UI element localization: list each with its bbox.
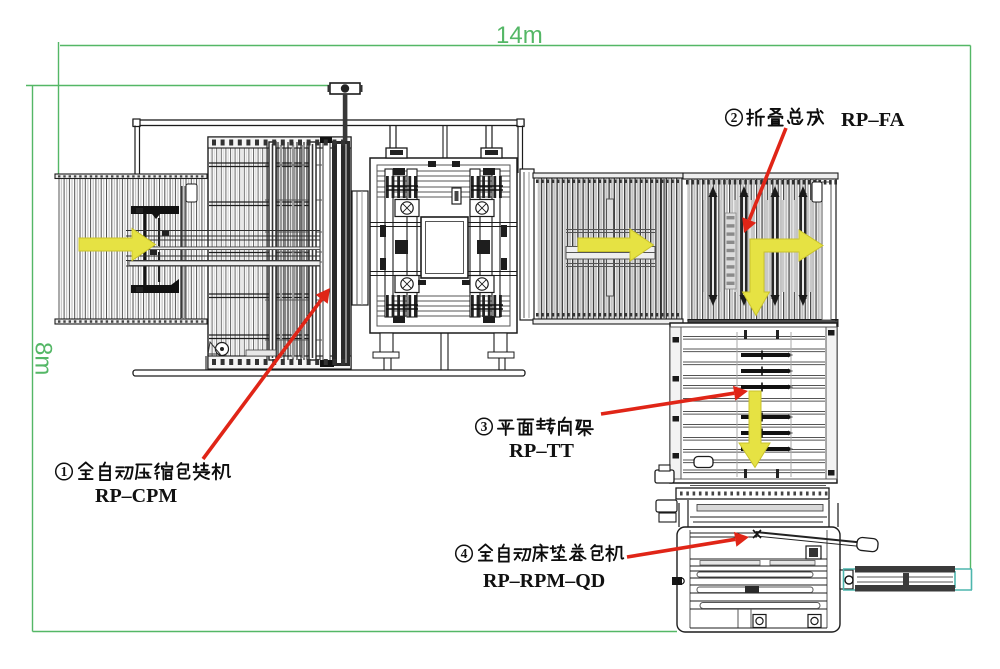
svg-text:RP–FA: RP–FA: [841, 109, 905, 131]
svg-text:RP–CPM: RP–CPM: [95, 485, 177, 507]
svg-text:1: 1: [61, 464, 68, 479]
svg-text:8m: 8m: [30, 342, 57, 375]
svg-text:3: 3: [481, 419, 488, 434]
svg-text:2: 2: [731, 110, 738, 125]
svg-text:14m: 14m: [496, 22, 543, 49]
svg-text:4: 4: [461, 546, 468, 561]
svg-text:RP–RPM–QD: RP–RPM–QD: [483, 570, 605, 592]
svg-text:RP–TT: RP–TT: [509, 440, 574, 462]
